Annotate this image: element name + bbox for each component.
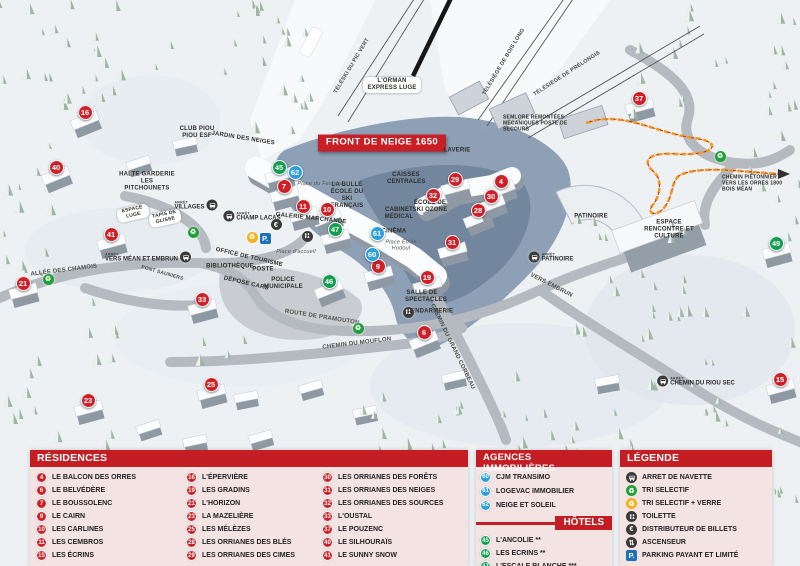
list-item-label: LOGEVAC IMMOBILIER [496,488,574,495]
map-marker-32[interactable]: 32 [426,188,441,203]
map-marker-37[interactable]: 37 [632,91,647,106]
map-marker-15[interactable]: 15 [773,372,788,387]
legend-item: ⇅ASCENSEUR [626,536,768,549]
map-marker-33[interactable]: 33 [195,292,210,307]
tri-icon: ♻ [43,274,54,285]
agences-title: AGENCES IMMOBILIÈRES [476,450,612,467]
bus-stop: ARRÊTVILLAGES [174,200,217,211]
list-item-number: 6 [36,485,47,496]
legend-item-label: ASCENSEUR [642,539,686,546]
list-item: 15LES ÉCRINS [36,549,186,562]
map-marker-41[interactable]: 41 [104,227,119,242]
map-marker-21[interactable]: 21 [16,276,31,291]
map-label: POLICE MUNICIPALE [264,277,302,291]
map-marker-23[interactable]: 23 [81,393,96,408]
map-marker-60[interactable]: 60 [365,247,380,262]
list-item-number: 7 [36,498,47,509]
euro-icon: € [271,219,282,230]
map-marker-45[interactable]: 45 [272,160,287,175]
map-label: CAISSES CENTRALES [387,172,425,186]
map-label: PATINOIRE [574,214,608,221]
map-label: CHEMIN PIÉTONNIER VERS LES ORRES 1800 BO… [722,175,784,192]
list-item: 25LES MÉLÈZES [186,523,322,536]
list-item-number: 29 [186,550,197,561]
list-item-number: 19 [186,485,197,496]
navette-icon [626,472,637,483]
list-item-label: LES ÉCRINS [52,552,94,559]
list-item-label: CJM TRANSIMO [496,474,550,481]
list-item: 30LES ORRIANES DES FORÊTS [322,471,470,484]
list-item: 4LE BALCON DES ORRES [36,471,186,484]
residences-list: 4LE BALCON DES ORRES6LE BELVÉDÈRE7LE BOU… [30,467,468,566]
list-item-label: LE BALCON DES ORRES [52,474,136,481]
list-item-number: 4 [36,472,47,483]
list-item-number: 23 [186,511,197,522]
legend-item: ♻TRI SELECTIF [626,484,768,497]
list-item-label: L'OUSTAL [338,513,372,520]
list-item: 33L'OUSTAL [322,510,470,523]
toilette-icon [302,231,313,242]
parking-icon: P. [626,550,637,561]
list-item: 41LE SUNNY SNOW [322,549,470,562]
list-item: 47L'ESCALE BLANCHE *** [480,560,608,566]
list-item-number: 21 [186,498,197,509]
legend-item: TOILETTE [626,510,768,523]
map-marker-16[interactable]: 16 [78,105,93,120]
map-marker-6[interactable]: 6 [417,325,432,340]
parking-icon: P. [260,233,271,244]
legend-item-label: ARRET DE NAVETTE [642,474,712,481]
bus-stop-name: VERS MÉAN ET EMBRUN [105,256,178,262]
map-marker-49[interactable]: 49 [769,236,784,251]
toilette-icon [403,307,414,318]
bus-stop: ARRÊTVERS MÉAN ET EMBRUN [105,252,191,263]
list-item-label: LES ORRIANES DES BLÉS [202,539,291,546]
list-item-label: LES MÉLÈZES [202,526,251,533]
map-marker-30[interactable]: 30 [484,189,499,204]
tri-verre-icon: ♻ [247,232,258,243]
list-item-number: 32 [322,498,333,509]
list-item: 45L'ANCOLIE ** [480,534,608,547]
agences-list: 60CJM TRANSIMO61LOGEVAC IMMOBILIER62NEIG… [476,467,612,515]
list-item-label: LES ORRIANES DES CIMES [202,552,295,559]
list-item: 7LE BOUSSOLENC [36,497,186,510]
hotels-list: 45L'ANCOLIE **46LES ECRINS **47L'ESCALE … [476,531,612,566]
map-label: HALTE GARDERIE LES PITCHOUNETS [118,172,176,193]
residences-title: RÉSIDENCES [30,450,468,467]
map-label: POSTE [252,267,273,274]
map-marker-10[interactable]: 10 [320,202,335,217]
legend-item: €DISTRIBUTEUR DE BILLETS [626,523,768,536]
list-item: 62NEIGE ET SOLEIL [480,498,608,512]
list-item-number: 37 [322,524,333,535]
list-item-number: 28 [186,537,197,548]
list-item-number: 62 [480,500,491,511]
map-marker-40[interactable]: 40 [49,160,64,175]
list-item-number: 11 [36,537,47,548]
list-item-label: LE CAIRN [52,513,85,520]
bus-stop-name: PATINOIRE [542,256,574,262]
legend-item: P.PARKING PAYANT ET LIMITÉ [626,549,768,562]
toilette-icon [626,511,637,522]
list-item: 31LES ORRIANES DES NEIGES [322,484,470,497]
map-marker-46[interactable]: 46 [322,274,337,289]
list-item: 40LE SILHOURAÏS [322,536,470,549]
panel-legende: LÉGENDE ARRET DE NAVETTE♻TRI SELECTIF♻TR… [620,450,772,566]
map-marker-47[interactable]: 47 [328,222,343,237]
hotels-header: HÔTELS [476,516,612,530]
list-item: 21L'HORIZON [186,497,322,510]
map-label: CINÉMA [382,229,407,236]
list-item-number: 10 [36,524,47,535]
list-item-number: 15 [36,550,47,561]
list-item: 28LES ORRIANES DES BLÉS [186,536,322,549]
list-item: 19LES GRADINS [186,484,322,497]
list-item: 32LES ORRIANES DES SOURCES [322,497,470,510]
map-marker-62[interactable]: 62 [288,165,303,180]
tri-icon: ♻ [188,227,199,238]
list-item-label: LES ORRIANES DES NEIGES [338,487,435,494]
map-label: L'ORMAN EXPRESS LUGE [363,77,421,93]
legend-item: ARRET DE NAVETTE [626,471,768,484]
legend-item-label: TRI SELECTIF [642,487,689,494]
list-item-number: 33 [322,511,333,522]
list-item-label: LA MAZELIÈRE [202,513,253,520]
bus-stop-name: VILLAGES [174,204,204,210]
list-item: 16L'ÉPERVIÈRE [186,471,322,484]
tri-icon: ♻ [626,485,637,496]
map-marker-28[interactable]: 28 [471,203,486,218]
panel-residences: RÉSIDENCES 4LE BALCON DES ORRES6LE BELVÉ… [30,450,468,566]
map-marker-29[interactable]: 29 [448,172,463,187]
map-marker-25[interactable]: 25 [204,377,219,392]
map-marker-61[interactable]: 61 [370,226,385,241]
list-item: 23LA MAZELIÈRE [186,510,322,523]
list-item: 11LES CEMBROS [36,536,186,549]
hotels-divider [476,522,555,525]
list-item-label: NEIGE ET SOLEIL [496,502,556,509]
list-item: 37LE POUZENC [322,523,470,536]
bus-icon [529,252,540,263]
map-label: LAVERIE [444,148,471,155]
list-item: 6LE BELVÉDÈRE [36,484,186,497]
list-item-label: L'HORIZON [202,500,240,507]
bus-icon [207,200,218,211]
list-item-label: LES CEMBROS [52,539,103,546]
list-item-number: 9 [36,511,47,522]
ascenseur-icon: ⇅ [626,537,637,548]
legende-title: LÉGENDE [620,450,772,467]
list-item-number: 46 [480,548,491,559]
list-item-number: 31 [322,485,333,496]
map-label: CABINET MÉDICAL [382,207,416,221]
list-item-label: LES ECRINS ** [496,550,545,557]
list-item: 10LES CARLINES [36,523,186,536]
bus-icon [180,252,191,263]
hotels-title: HÔTELS [555,516,612,530]
bus-stop: ARRÊTPATINOIRE [529,252,574,263]
euro-icon: € [626,524,637,535]
map-label: SALLE DE SPECTACLES [405,290,439,304]
list-item-number: 60 [480,472,491,483]
legend-item-label: TOILETTE [642,513,676,520]
list-item-label: LES GRADINS [202,487,250,494]
list-item: 9LE CAIRN [36,510,186,523]
legend-item: ♻TRI SELECTIF + VERRE [626,497,768,510]
list-item: 61LOGEVAC IMMOBILIER [480,484,608,498]
list-item-label: L'ANCOLIE ** [496,537,541,544]
list-item-label: LES ORRIANES DES FORÊTS [338,474,437,481]
list-item-label: LES ORRIANES DES SOURCES [338,500,443,507]
list-item-number: 61 [480,486,491,497]
legend-item-label: PARKING PAYANT ET LIMITÉ [642,552,738,559]
map-label: Place du Festival [297,181,342,187]
list-item-label: LE POUZENC [338,526,383,533]
tri-icon: ♻ [353,323,364,334]
resort-map: FRONT DE NEIGE 1650TÉLÉSKI DU PIC VERTTÉ… [0,0,800,566]
map-marker-4[interactable]: 4 [494,174,509,189]
map-label: SEMLORE REMONTÉES MÉCANIQUES POSTE DE SE… [503,115,581,132]
list-item-label: LE BOUSSOLENC [52,500,112,507]
map-marker-31[interactable]: 31 [445,235,460,250]
panel-agences: AGENCES IMMOBILIÈRES 60CJM TRANSIMO61LOG… [476,450,612,566]
map-label: BIBLIOTHÈQUE [206,264,254,271]
map-label: FRONT DE NEIGE 1650 [318,135,446,152]
list-item: 46LES ECRINS ** [480,547,608,560]
list-item-label: LES CARLINES [52,526,103,533]
list-item-number: 25 [186,524,197,535]
list-item-label: LE SILHOURAÏS [338,539,392,546]
list-item: 29LES ORRIANES DES CIMES [186,549,322,562]
legend-item-label: TRI SELECTIF + VERRE [642,500,721,507]
map-marker-19[interactable]: 19 [420,270,435,285]
list-item-number: 40 [322,537,333,548]
list-item-number: 45 [480,535,491,546]
map-label: Place d'accueil [276,249,316,255]
legende-list: ARRET DE NAVETTE♻TRI SELECTIF♻TRI SELECT… [620,467,772,566]
map-marker-7[interactable]: 7 [277,179,292,194]
bus-icon [223,211,234,222]
legend-item-label: DISTRIBUTEUR DE BILLETS [642,526,737,533]
tri-verre-icon: ♻ [626,498,637,509]
map-marker-11[interactable]: 11 [296,199,311,214]
list-item-number: 41 [322,550,333,561]
bus-stop: ARRÊTCHEMIN DU RIOU SEC [657,376,735,387]
map-label: ESPACE RENCONTRE ET CULTURE [642,220,696,241]
list-item-number: 47 [480,561,491,566]
list-item-number: 30 [322,472,333,483]
map-label: Place Émile Hodoul [384,240,418,253]
bus-stop-name: CHEMIN DU RIOU SEC [670,380,735,386]
list-item-label: LE BELVÉDÈRE [52,487,105,494]
tri-icon: ♻ [715,151,726,162]
list-item-label: L'ÉPERVIÈRE [202,474,248,481]
bus-icon [657,376,668,387]
list-item-number: 16 [186,472,197,483]
list-item-label: LE SUNNY SNOW [338,552,397,559]
